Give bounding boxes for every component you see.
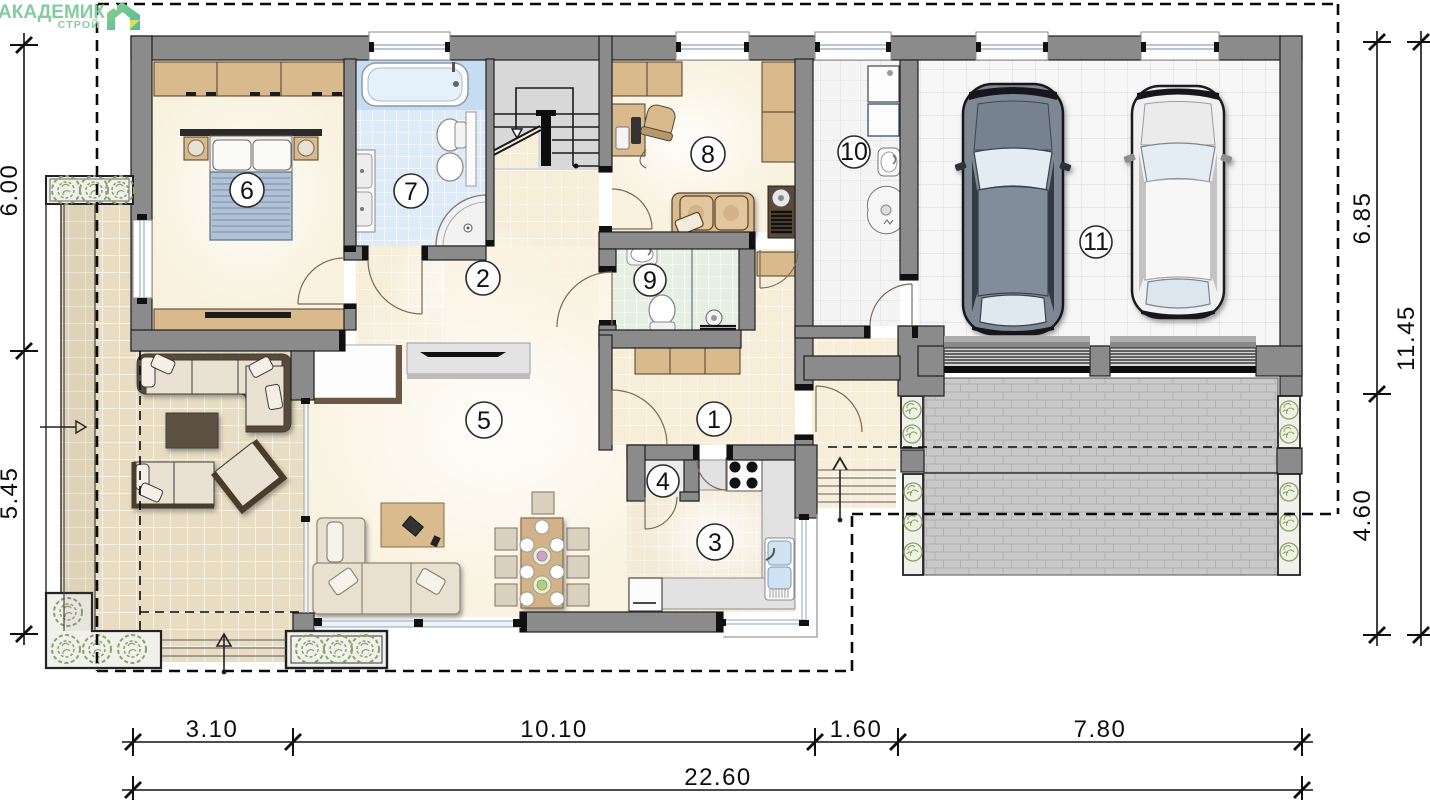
svg-text:10: 10 <box>840 138 868 166</box>
svg-text:4: 4 <box>656 468 670 496</box>
svg-text:3: 3 <box>708 529 722 557</box>
svg-text:10.10: 10.10 <box>520 716 588 743</box>
svg-text:8: 8 <box>701 141 715 169</box>
svg-text:22.60: 22.60 <box>684 764 752 791</box>
svg-text:7: 7 <box>404 178 418 206</box>
svg-text:5.45: 5.45 <box>0 467 23 520</box>
svg-text:6: 6 <box>240 177 254 205</box>
svg-text:11: 11 <box>1083 228 1109 256</box>
svg-text:3.10: 3.10 <box>186 716 239 743</box>
svg-text:4.60: 4.60 <box>1349 489 1376 542</box>
svg-text:1: 1 <box>707 406 721 434</box>
svg-text:7.80: 7.80 <box>1074 716 1127 743</box>
svg-text:9: 9 <box>643 267 657 295</box>
svg-text:1.60: 1.60 <box>830 716 883 743</box>
svg-text:СТРОЙ: СТРОЙ <box>58 18 100 31</box>
svg-text:5: 5 <box>477 407 491 435</box>
svg-text:2: 2 <box>476 265 490 293</box>
svg-text:11.45: 11.45 <box>1393 305 1420 371</box>
svg-text:6.00: 6.00 <box>0 164 23 217</box>
svg-text:6.85: 6.85 <box>1349 192 1376 245</box>
